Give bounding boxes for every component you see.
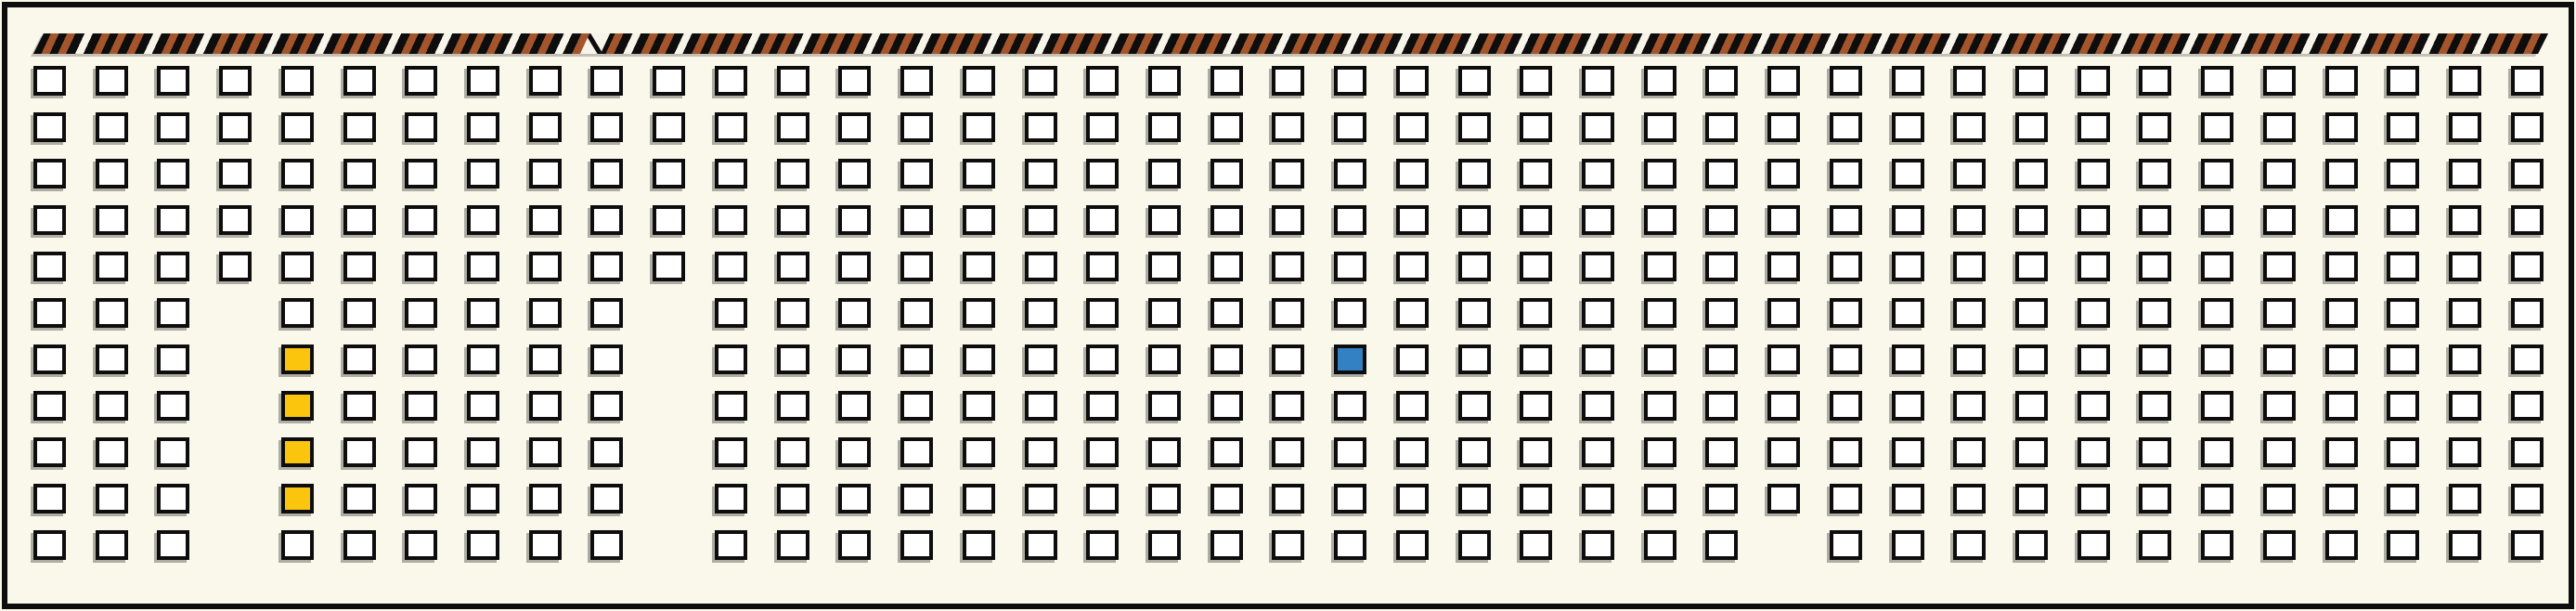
seat-cell[interactable]: [1582, 344, 1614, 374]
seat-cell[interactable]: [900, 205, 933, 235]
seat-cell[interactable]: [715, 66, 747, 96]
seat-cell[interactable]: [2201, 205, 2233, 235]
seat-cell[interactable]: [963, 530, 995, 560]
seat-cell[interactable]: [33, 344, 66, 374]
seat-cell[interactable]: [1830, 66, 1862, 96]
seat-cell[interactable]: [2387, 484, 2419, 513]
seat-cell[interactable]: [281, 437, 314, 467]
seat-cell[interactable]: [1830, 159, 1862, 188]
seat-cell[interactable]: [963, 252, 995, 281]
seat-cell[interactable]: [715, 298, 747, 328]
seat-cell[interactable]: [1458, 112, 1491, 142]
seat-cell[interactable]: [219, 252, 252, 281]
seat-cell[interactable]: [1148, 484, 1181, 513]
seat-cell[interactable]: [1086, 66, 1119, 96]
seat-cell[interactable]: [1767, 391, 1800, 421]
seat-cell[interactable]: [2449, 298, 2481, 328]
seat-cell[interactable]: [963, 391, 995, 421]
seat-cell[interactable]: [1396, 252, 1429, 281]
seat-cell[interactable]: [1334, 205, 1366, 235]
seat-cell[interactable]: [343, 112, 376, 142]
seat-cell[interactable]: [1830, 298, 1862, 328]
seat-cell[interactable]: [1892, 437, 1924, 467]
seat-cell[interactable]: [2015, 344, 2048, 374]
seat-cell[interactable]: [1025, 391, 1057, 421]
seat-cell[interactable]: [1396, 112, 1429, 142]
seat-cell[interactable]: [1458, 205, 1491, 235]
seat-cell[interactable]: [1025, 252, 1057, 281]
seat-cell[interactable]: [157, 66, 189, 96]
seat-cell[interactable]: [777, 344, 809, 374]
seat-cell[interactable]: [1520, 66, 1552, 96]
seat-cell[interactable]: [900, 112, 933, 142]
seat-cell[interactable]: [1644, 437, 1676, 467]
seat-cell[interactable]: [1148, 530, 1181, 560]
seat-cell[interactable]: [1520, 344, 1552, 374]
seat-cell[interactable]: [2263, 391, 2296, 421]
seat-cell[interactable]: [467, 484, 499, 513]
seat-cell[interactable]: [157, 252, 189, 281]
seat-cell[interactable]: [590, 484, 623, 513]
seat-cell[interactable]: [1086, 344, 1119, 374]
seat-cell[interactable]: [467, 112, 499, 142]
seat-cell[interactable]: [653, 252, 685, 281]
seat-cell[interactable]: [1892, 344, 1924, 374]
seat-cell[interactable]: [405, 344, 437, 374]
seat-cell[interactable]: [2511, 112, 2544, 142]
seat-cell[interactable]: [467, 344, 499, 374]
seat-cell[interactable]: [1582, 298, 1614, 328]
seat-cell[interactable]: [96, 66, 128, 96]
seat-cell[interactable]: [590, 66, 623, 96]
seat-cell[interactable]: [1705, 484, 1738, 513]
seat-cell[interactable]: [1272, 252, 1304, 281]
seat-cell[interactable]: [281, 66, 314, 96]
seat-cell[interactable]: [2325, 159, 2358, 188]
seat-cell[interactable]: [33, 159, 66, 188]
seat-cell[interactable]: [405, 484, 437, 513]
seat-cell[interactable]: [1582, 252, 1614, 281]
seat-cell[interactable]: [1644, 344, 1676, 374]
seat-cell[interactable]: [2201, 66, 2233, 96]
seat-cell[interactable]: [2387, 344, 2419, 374]
seat-cell[interactable]: [1953, 530, 1986, 560]
seat-cell[interactable]: [1767, 66, 1800, 96]
seat-cell[interactable]: [1520, 530, 1552, 560]
seat-cell[interactable]: [838, 298, 871, 328]
seat-cell[interactable]: [2449, 530, 2481, 560]
seat-cell[interactable]: [1582, 159, 1614, 188]
seat-cell[interactable]: [715, 530, 747, 560]
seat-cell[interactable]: [1025, 484, 1057, 513]
seat-cell[interactable]: [838, 344, 871, 374]
seat-cell[interactable]: [2139, 437, 2171, 467]
seat-cell[interactable]: [1458, 252, 1491, 281]
seat-cell[interactable]: [1148, 112, 1181, 142]
seat-cell[interactable]: [1086, 205, 1119, 235]
seat-cell[interactable]: [777, 252, 809, 281]
seat-cell[interactable]: [900, 159, 933, 188]
seat-cell[interactable]: [1272, 530, 1304, 560]
seat-cell[interactable]: [1334, 391, 1366, 421]
seat-cell[interactable]: [2387, 112, 2419, 142]
seat-cell[interactable]: [529, 437, 562, 467]
seat-cell[interactable]: [2511, 344, 2544, 374]
seat-cell[interactable]: [777, 159, 809, 188]
seat-cell[interactable]: [1086, 252, 1119, 281]
seat-cell[interactable]: [1520, 484, 1552, 513]
seat-cell[interactable]: [1148, 159, 1181, 188]
seat-cell[interactable]: [1767, 252, 1800, 281]
seat-cell[interactable]: [219, 66, 252, 96]
seat-cell[interactable]: [1025, 530, 1057, 560]
seat-cell[interactable]: [1458, 391, 1491, 421]
seat-cell[interactable]: [2325, 112, 2358, 142]
seat-cell[interactable]: [2263, 344, 2296, 374]
seat-cell[interactable]: [1210, 205, 1243, 235]
seat-cell[interactable]: [2325, 205, 2358, 235]
seat-cell[interactable]: [1272, 112, 1304, 142]
seat-cell[interactable]: [590, 344, 623, 374]
seat-cell[interactable]: [1892, 530, 1924, 560]
seat-cell[interactable]: [777, 530, 809, 560]
seat-cell[interactable]: [1334, 530, 1366, 560]
seat-cell[interactable]: [1210, 66, 1243, 96]
seat-cell[interactable]: [1148, 344, 1181, 374]
seat-cell[interactable]: [715, 437, 747, 467]
seat-cell[interactable]: [96, 391, 128, 421]
seat-cell[interactable]: [2078, 437, 2110, 467]
seat-cell[interactable]: [405, 391, 437, 421]
seat-cell[interactable]: [2511, 437, 2544, 467]
seat-cell[interactable]: [2201, 252, 2233, 281]
seat-cell[interactable]: [2139, 159, 2171, 188]
seat-cell[interactable]: [777, 112, 809, 142]
seat-cell[interactable]: [2263, 205, 2296, 235]
seat-cell[interactable]: [529, 66, 562, 96]
seat-cell[interactable]: [1520, 159, 1552, 188]
seat-cell[interactable]: [1272, 159, 1304, 188]
seat-cell[interactable]: [529, 252, 562, 281]
seat-cell[interactable]: [529, 530, 562, 560]
seat-cell[interactable]: [1272, 344, 1304, 374]
seat-cell[interactable]: [157, 437, 189, 467]
seat-cell[interactable]: [2263, 66, 2296, 96]
seat-cell[interactable]: [1705, 298, 1738, 328]
seat-cell[interactable]: [715, 344, 747, 374]
seat-cell[interactable]: [963, 437, 995, 467]
seat-cell[interactable]: [590, 159, 623, 188]
seat-cell[interactable]: [1210, 112, 1243, 142]
seat-cell[interactable]: [590, 112, 623, 142]
seat-cell[interactable]: [2078, 484, 2110, 513]
seat-cell[interactable]: [1705, 252, 1738, 281]
seat-cell[interactable]: [1334, 66, 1366, 96]
seat-cell[interactable]: [777, 298, 809, 328]
seat-cell[interactable]: [2078, 112, 2110, 142]
seat-cell[interactable]: [1210, 391, 1243, 421]
seat-cell[interactable]: [96, 298, 128, 328]
seat-cell[interactable]: [467, 66, 499, 96]
seat-cell[interactable]: [2325, 298, 2358, 328]
seat-cell[interactable]: [2325, 391, 2358, 421]
seat-cell[interactable]: [2387, 205, 2419, 235]
seat-cell[interactable]: [2449, 205, 2481, 235]
seat-cell[interactable]: [1334, 252, 1366, 281]
seat-cell[interactable]: [281, 530, 314, 560]
seat-cell[interactable]: [1272, 437, 1304, 467]
seat-cell[interactable]: [343, 159, 376, 188]
seat-cell[interactable]: [96, 344, 128, 374]
seat-cell[interactable]: [1025, 205, 1057, 235]
seat-cell[interactable]: [2078, 344, 2110, 374]
seat-cell[interactable]: [1953, 205, 1986, 235]
seat-cell[interactable]: [343, 298, 376, 328]
seat-cell[interactable]: [838, 530, 871, 560]
seat-cell[interactable]: [33, 437, 66, 467]
seat-cell[interactable]: [1767, 112, 1800, 142]
seat-cell[interactable]: [653, 112, 685, 142]
seat-cell[interactable]: [1644, 159, 1676, 188]
seat-cell[interactable]: [1705, 66, 1738, 96]
seat-cell[interactable]: [2139, 298, 2171, 328]
seat-cell[interactable]: [2325, 530, 2358, 560]
seat-cell[interactable]: [2511, 252, 2544, 281]
seat-cell[interactable]: [1086, 530, 1119, 560]
seat-cell[interactable]: [1644, 298, 1676, 328]
seat-cell[interactable]: [2511, 484, 2544, 513]
seat-cell[interactable]: [2511, 530, 2544, 560]
seat-cell[interactable]: [2078, 252, 2110, 281]
seat-cell[interactable]: [281, 298, 314, 328]
seat-cell[interactable]: [2387, 252, 2419, 281]
seat-cell[interactable]: [467, 252, 499, 281]
seat-cell[interactable]: [715, 112, 747, 142]
seat-cell[interactable]: [1830, 437, 1862, 467]
seat-cell[interactable]: [1767, 484, 1800, 513]
seat-cell[interactable]: [529, 205, 562, 235]
seat-cell[interactable]: [1830, 391, 1862, 421]
seat-cell[interactable]: [96, 159, 128, 188]
seat-cell[interactable]: [2449, 252, 2481, 281]
seat-cell[interactable]: [2449, 484, 2481, 513]
seat-cell[interactable]: [1767, 298, 1800, 328]
seat-cell[interactable]: [1582, 391, 1614, 421]
seat-cell[interactable]: [2511, 159, 2544, 188]
seat-cell[interactable]: [900, 66, 933, 96]
seat-cell[interactable]: [1334, 112, 1366, 142]
seat-cell[interactable]: [777, 484, 809, 513]
seat-cell[interactable]: [900, 530, 933, 560]
seat-cell[interactable]: [963, 484, 995, 513]
seat-cell[interactable]: [2263, 484, 2296, 513]
seat-cell[interactable]: [1148, 205, 1181, 235]
seat-cell[interactable]: [405, 437, 437, 467]
seat-cell[interactable]: [1953, 437, 1986, 467]
seat-cell[interactable]: [1458, 437, 1491, 467]
seat-cell[interactable]: [157, 205, 189, 235]
seat-cell[interactable]: [838, 484, 871, 513]
seat-cell[interactable]: [529, 344, 562, 374]
seat-cell[interactable]: [2015, 484, 2048, 513]
seat-cell[interactable]: [1520, 205, 1552, 235]
seat-cell[interactable]: [1644, 112, 1676, 142]
seat-cell[interactable]: [1148, 298, 1181, 328]
seat-cell[interactable]: [529, 159, 562, 188]
seat-cell[interactable]: [2201, 344, 2233, 374]
seat-cell[interactable]: [2201, 530, 2233, 560]
seat-cell[interactable]: [1458, 530, 1491, 560]
seat-cell[interactable]: [1830, 252, 1862, 281]
seat-cell[interactable]: [405, 159, 437, 188]
seat-cell[interactable]: [1272, 391, 1304, 421]
seat-cell[interactable]: [1582, 437, 1614, 467]
seat-cell[interactable]: [1210, 344, 1243, 374]
seat-cell[interactable]: [1520, 437, 1552, 467]
seat-cell[interactable]: [96, 112, 128, 142]
seat-cell[interactable]: [1210, 530, 1243, 560]
seat-cell[interactable]: [2511, 66, 2544, 96]
seat-cell[interactable]: [900, 484, 933, 513]
seat-cell[interactable]: [1953, 66, 1986, 96]
seat-cell[interactable]: [1953, 298, 1986, 328]
seat-cell[interactable]: [1582, 530, 1614, 560]
seat-cell[interactable]: [1767, 159, 1800, 188]
seat-cell[interactable]: [1210, 159, 1243, 188]
seat-cell[interactable]: [838, 391, 871, 421]
seat-cell[interactable]: [33, 484, 66, 513]
seat-cell[interactable]: [838, 112, 871, 142]
seat-cell[interactable]: [1334, 159, 1366, 188]
seat-cell[interactable]: [1705, 391, 1738, 421]
seat-cell[interactable]: [2139, 66, 2171, 96]
seat-cell[interactable]: [1953, 484, 1986, 513]
seat-cell[interactable]: [838, 159, 871, 188]
seat-cell[interactable]: [2139, 484, 2171, 513]
seat-cell[interactable]: [1830, 484, 1862, 513]
seat-cell[interactable]: [1892, 66, 1924, 96]
seat-cell[interactable]: [157, 530, 189, 560]
seat-cell[interactable]: [1767, 205, 1800, 235]
seat-cell[interactable]: [96, 205, 128, 235]
seat-cell[interactable]: [1025, 437, 1057, 467]
seat-cell[interactable]: [653, 159, 685, 188]
seat-cell[interactable]: [1953, 159, 1986, 188]
seat-cell[interactable]: [1644, 205, 1676, 235]
seat-cell[interactable]: [281, 391, 314, 421]
seat-cell[interactable]: [2015, 159, 2048, 188]
seat-cell[interactable]: [33, 391, 66, 421]
seat-cell[interactable]: [1892, 112, 1924, 142]
seat-cell[interactable]: [219, 159, 252, 188]
seat-cell[interactable]: [1210, 252, 1243, 281]
seat-cell[interactable]: [343, 252, 376, 281]
seat-cell[interactable]: [1334, 484, 1366, 513]
seat-cell[interactable]: [1086, 437, 1119, 467]
seat-cell[interactable]: [838, 66, 871, 96]
seat-cell[interactable]: [2139, 530, 2171, 560]
seat-cell[interactable]: [963, 66, 995, 96]
seat-cell[interactable]: [2015, 205, 2048, 235]
seat-cell[interactable]: [1520, 391, 1552, 421]
seat-cell[interactable]: [2263, 252, 2296, 281]
seat-cell[interactable]: [2015, 252, 2048, 281]
seat-cell[interactable]: [2449, 112, 2481, 142]
seat-cell[interactable]: [2449, 391, 2481, 421]
seat-cell[interactable]: [1086, 298, 1119, 328]
seat-cell[interactable]: [1892, 484, 1924, 513]
seat-cell[interactable]: [1334, 298, 1366, 328]
seat-cell[interactable]: [157, 112, 189, 142]
seat-cell[interactable]: [963, 159, 995, 188]
seat-cell[interactable]: [281, 484, 314, 513]
seat-cell[interactable]: [33, 205, 66, 235]
seat-cell[interactable]: [1210, 298, 1243, 328]
seat-cell[interactable]: [1396, 437, 1429, 467]
seat-cell[interactable]: [157, 344, 189, 374]
seat-cell[interactable]: [1520, 298, 1552, 328]
seat-cell[interactable]: [715, 205, 747, 235]
seat-cell[interactable]: [590, 530, 623, 560]
seat-cell[interactable]: [715, 252, 747, 281]
seat-cell[interactable]: [1272, 66, 1304, 96]
seat-cell[interactable]: [1953, 344, 1986, 374]
seat-cell[interactable]: [2139, 112, 2171, 142]
seat-cell[interactable]: [1705, 344, 1738, 374]
seat-cell[interactable]: [2078, 298, 2110, 328]
seat-cell[interactable]: [1644, 530, 1676, 560]
seat-cell[interactable]: [96, 252, 128, 281]
seat-cell[interactable]: [1025, 159, 1057, 188]
seat-cell[interactable]: [2325, 252, 2358, 281]
seat-cell[interactable]: [1644, 252, 1676, 281]
seat-cell[interactable]: [590, 437, 623, 467]
seat-cell[interactable]: [281, 112, 314, 142]
seat-cell[interactable]: [2325, 344, 2358, 374]
seat-cell[interactable]: [2511, 298, 2544, 328]
seat-cell[interactable]: [1272, 484, 1304, 513]
seat-cell[interactable]: [1272, 298, 1304, 328]
seat-cell[interactable]: [1892, 298, 1924, 328]
seat-cell[interactable]: [2387, 437, 2419, 467]
seat-cell[interactable]: [1396, 391, 1429, 421]
seat-cell[interactable]: [1148, 391, 1181, 421]
seat-cell[interactable]: [1582, 112, 1614, 142]
seat-cell[interactable]: [777, 66, 809, 96]
seat-cell[interactable]: [900, 252, 933, 281]
seat-cell[interactable]: [1025, 112, 1057, 142]
seat-cell[interactable]: [2325, 437, 2358, 467]
seat-cell[interactable]: [900, 437, 933, 467]
seat-cell[interactable]: [219, 112, 252, 142]
seat-cell[interactable]: [2078, 530, 2110, 560]
seat-cell[interactable]: [1210, 484, 1243, 513]
seat-cell[interactable]: [529, 298, 562, 328]
seat-cell[interactable]: [777, 437, 809, 467]
seat-cell[interactable]: [1334, 344, 1366, 374]
seat-cell[interactable]: [2078, 205, 2110, 235]
seat-cell[interactable]: [1086, 112, 1119, 142]
seat-cell[interactable]: [2511, 391, 2544, 421]
seat-cell[interactable]: [1705, 112, 1738, 142]
seat-cell[interactable]: [2387, 391, 2419, 421]
seat-cell[interactable]: [33, 112, 66, 142]
seat-cell[interactable]: [2325, 484, 2358, 513]
seat-cell[interactable]: [590, 205, 623, 235]
seat-cell[interactable]: [405, 530, 437, 560]
seat-cell[interactable]: [1705, 437, 1738, 467]
seat-cell[interactable]: [219, 205, 252, 235]
